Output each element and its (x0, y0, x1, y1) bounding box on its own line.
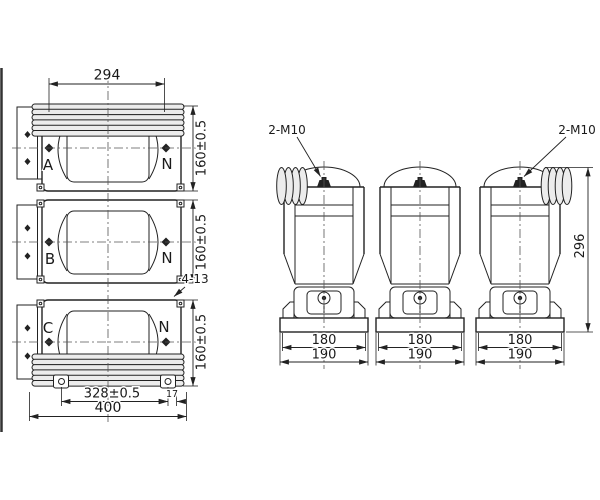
side-views: 180 190 (268, 123, 596, 369)
dim-text-160-b: 160±0.5 (195, 214, 210, 270)
mounting-foot (54, 375, 69, 388)
dim-160-unit-a: 160±0.5 (183, 106, 210, 191)
dim-text-160-a: 160±0.5 (195, 120, 210, 176)
mounting-hole-icon (165, 379, 171, 385)
side-wing (283, 302, 294, 318)
side-view-3: 180 190 (476, 161, 572, 369)
dim-text-180: 180 (508, 333, 533, 348)
dim-text-190: 190 (408, 348, 433, 363)
drawing-sheet: A N B N (0, 0, 600, 500)
shed-fins-side (541, 168, 572, 205)
terminal-label-n: N (161, 249, 172, 267)
terminal-label-c: C (43, 319, 53, 337)
front-view: A N B N (12, 68, 210, 423)
technical-drawing: A N B N (0, 0, 600, 500)
note-text-2-m10: 2-M10 (558, 123, 596, 137)
dim-text-190: 190 (312, 348, 337, 363)
shed-fins-side (277, 168, 308, 205)
side-view-2: 180 190 (376, 161, 464, 369)
mounting-foot (161, 375, 176, 388)
dim-160-unit-b: 160±0.5 (183, 200, 210, 283)
note-text-2-m10: 2-M10 (268, 123, 306, 137)
note-text-4-13: 4-13 (181, 272, 208, 286)
terminal-label-n: N (161, 155, 172, 173)
dim-text-17: 17 (166, 389, 178, 400)
phase-unit-a: A N (17, 104, 184, 191)
terminal-label-a: A (43, 156, 54, 174)
side-wing (379, 302, 390, 318)
terminal-label-n: N (158, 318, 169, 336)
side-wing (550, 302, 561, 318)
phase-unit-c: C N (17, 300, 184, 388)
side-view-1: 180 190 (277, 161, 368, 369)
dim-text-296: 296 (573, 234, 588, 259)
dim-text-400: 400 (95, 400, 122, 416)
dim-17: 17 (159, 389, 185, 406)
side-wing (354, 302, 365, 318)
dim-text-160-c: 160±0.5 (195, 314, 210, 370)
side-wing (479, 302, 490, 318)
phase-unit-b: B N (17, 200, 184, 283)
dim-text-294: 294 (94, 68, 121, 84)
side-wing (450, 302, 461, 318)
dim-text-180: 180 (408, 333, 433, 348)
dim-text-190: 190 (508, 348, 533, 363)
terminal-label-b: B (45, 250, 55, 268)
mounting-hole-icon (59, 379, 65, 385)
dim-text-180: 180 (312, 333, 337, 348)
dim-160-unit-c: 160±0.5 (183, 300, 210, 386)
